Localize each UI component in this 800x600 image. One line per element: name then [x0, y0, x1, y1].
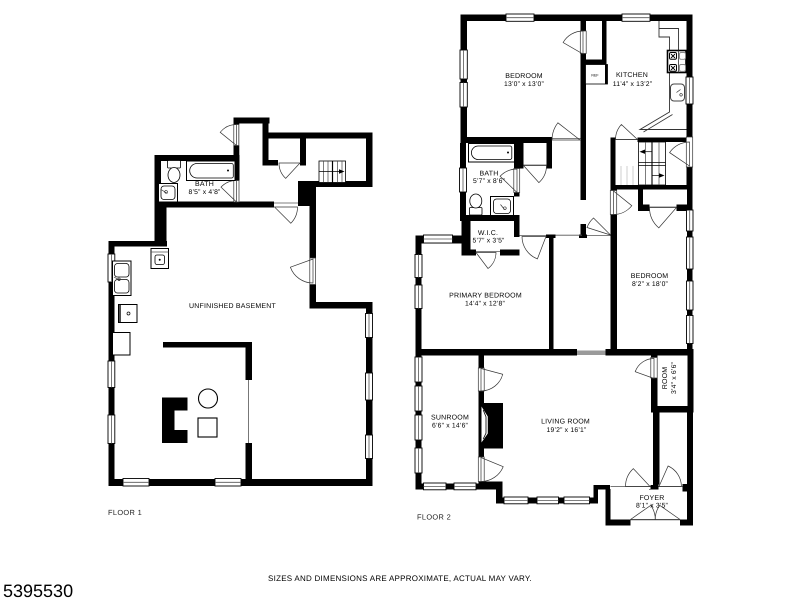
svg-text:5’7” x 8’6”: 5’7” x 8’6”	[473, 178, 506, 185]
svg-text:3’4” x 6’6”: 3’4” x 6’6”	[671, 361, 678, 394]
svg-text:LIVING ROOM: LIVING ROOM	[541, 419, 590, 426]
svg-text:BATH: BATH	[195, 181, 214, 188]
svg-text:13’0” x 13’0”: 13’0” x 13’0”	[504, 81, 545, 88]
svg-text:FLOOR 1: FLOOR 1	[108, 508, 142, 517]
svg-text:ROOM: ROOM	[662, 367, 669, 390]
svg-text:FLOOR 2: FLOOR 2	[417, 513, 451, 522]
svg-text:8’5” x 4’8”: 8’5” x 4’8”	[188, 189, 221, 196]
svg-text:8’1” x 3’5”: 8’1” x 3’5”	[636, 503, 669, 510]
svg-text:SUNROOM: SUNROOM	[431, 415, 469, 422]
svg-text:BEDROOM: BEDROOM	[505, 73, 543, 80]
svg-text:W.I.C.: W.I.C.	[478, 230, 498, 237]
svg-text:BATH: BATH	[480, 171, 499, 178]
svg-text:14’4” x 12’8”: 14’4” x 12’8”	[465, 301, 506, 308]
svg-text:6’6” x 14’6”: 6’6” x 14’6”	[432, 423, 469, 430]
svg-text:11’4” x 13’2”: 11’4” x 13’2”	[613, 81, 653, 88]
svg-text:FOYER: FOYER	[639, 495, 664, 502]
svg-text:UNFINISHED BASEMENT: UNFINISHED BASEMENT	[189, 303, 277, 310]
svg-text:5395530: 5395530	[3, 581, 73, 600]
svg-text:BEDROOM: BEDROOM	[631, 273, 669, 280]
svg-text:SIZES AND DIMENSIONS ARE APPRO: SIZES AND DIMENSIONS ARE APPROXIMATE, AC…	[268, 574, 532, 583]
svg-text:REF: REF	[591, 74, 599, 78]
svg-text:5’7” x 3’5”: 5’7” x 3’5”	[472, 238, 505, 245]
svg-text:KITCHEN: KITCHEN	[616, 72, 648, 79]
svg-text:8’2” x 18’0”: 8’2” x 18’0”	[632, 281, 669, 288]
svg-text:PRIMARY BEDROOM: PRIMARY BEDROOM	[449, 293, 522, 300]
svg-text:19’2” x 16’1”: 19’2” x 16’1”	[546, 427, 587, 434]
